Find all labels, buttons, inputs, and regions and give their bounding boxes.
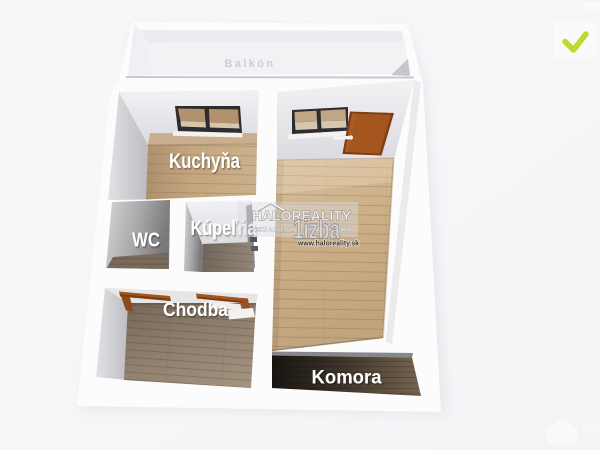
svg-text:WC: WC [132, 229, 160, 252]
svg-text:Chodba: Chodba [163, 299, 228, 321]
svg-text:www.haloreality.sk: www.haloreality.sk [297, 239, 360, 248]
svg-text:Komora: Komora [312, 367, 382, 389]
svg-text:Balkón: Balkón [224, 58, 275, 70]
svg-text:Kuchyňa: Kuchyňa [169, 150, 240, 173]
